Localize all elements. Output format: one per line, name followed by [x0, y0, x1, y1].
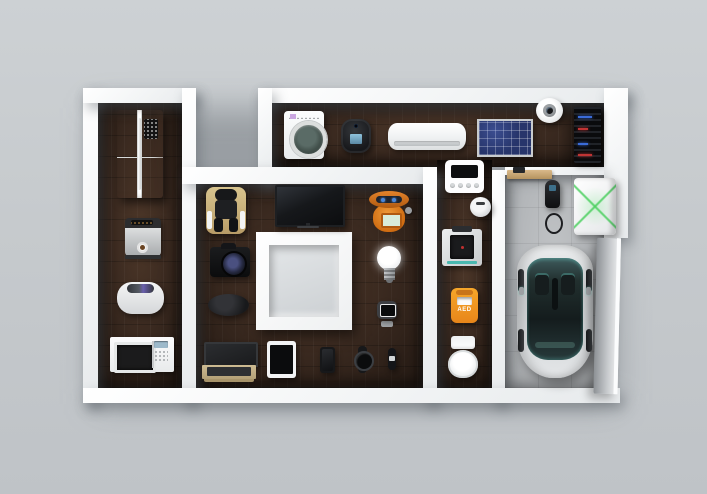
- smart-camera-head: [377, 301, 397, 319]
- air-conditioner-vent: [394, 141, 460, 146]
- robot-body: [373, 204, 405, 232]
- car-seat-left: [535, 275, 549, 295]
- massage-chair: [206, 187, 246, 234]
- central-atrium-block: [256, 232, 352, 330]
- refrigerator-control-panel: [144, 119, 158, 139]
- wall-top-outer: [258, 88, 628, 103]
- air-conditioner: [388, 123, 466, 150]
- coffee-drip-tray: [125, 255, 161, 259]
- ev-charger-handle: [545, 180, 560, 208]
- massage-chair-footrest-right: [229, 218, 238, 232]
- thermostat-display-slot: [476, 202, 485, 205]
- wall-living-right: [423, 167, 437, 403]
- smartwatch: [353, 346, 371, 373]
- toilet-bowl: [448, 350, 478, 378]
- ev-charger-cable: [545, 213, 563, 234]
- energy-monitor-button-1: [450, 183, 455, 188]
- wall-kitchen-top: [83, 88, 196, 103]
- refrigerator-handle: [138, 118, 141, 190]
- bulb-tip: [386, 280, 393, 283]
- electric-car: [517, 245, 593, 378]
- computer-mouse: [208, 294, 249, 316]
- smart-home-floorplan-render: AED: [0, 0, 707, 494]
- coffee-machine: [125, 218, 161, 256]
- dslr-camera: [210, 247, 250, 277]
- toilet-tank: [451, 336, 475, 349]
- robot-head: [369, 191, 409, 208]
- tv-stand-base: [297, 226, 319, 228]
- tablet-screen: [270, 345, 293, 374]
- camera-viewfinder-hump: [221, 243, 236, 249]
- aed-handle: [456, 290, 473, 295]
- wall-living-top: [182, 167, 437, 184]
- massage-chair-seat: [215, 200, 237, 219]
- microwave-keypad: [154, 350, 168, 362]
- aed-defibrillator: AED: [451, 288, 478, 323]
- smart-refrigerator: [117, 110, 163, 198]
- ev-charger-screen: [549, 185, 556, 191]
- rice-cooker: [117, 282, 164, 314]
- washer-door: [290, 121, 327, 158]
- laptop-front-lip: [204, 379, 254, 382]
- robot-eye-right-icon: [392, 198, 396, 202]
- solar-panel: [477, 119, 533, 157]
- dome-security-camera: [536, 98, 563, 123]
- atrium-recess: [269, 245, 339, 317]
- led-bulb: [377, 246, 401, 284]
- smartphone-screen: [322, 349, 333, 371]
- laptop-keyboard-deck: [202, 365, 256, 379]
- car-glass-roof: [527, 258, 583, 360]
- car-mirror-left: [519, 287, 524, 295]
- energy-monitor-screen: [451, 165, 478, 178]
- microwave-door: [114, 342, 156, 373]
- server-rack: [574, 107, 601, 163]
- massage-chair-footrest-left: [214, 218, 223, 232]
- washer-control-strip: [288, 114, 320, 119]
- coffee-machine-display: [131, 220, 153, 225]
- robot-hand: [405, 207, 412, 214]
- aed-label: AED: [451, 307, 478, 313]
- server-led-blue: [578, 116, 592, 118]
- car-wheel-rear-right: [586, 329, 592, 352]
- car-wheel-rear-left: [518, 329, 524, 352]
- smart-toilet: [447, 336, 479, 379]
- rice-cooker-lid: [127, 284, 154, 293]
- smart-camera-lens-icon: [380, 304, 396, 317]
- car-center-console: [552, 278, 558, 310]
- garage-wall-shelf: [507, 170, 552, 179]
- server-led-red: [578, 128, 588, 130]
- laptop-keyboard: [207, 367, 251, 376]
- smartphone: [320, 347, 335, 373]
- robot-belly-screen: [381, 213, 402, 228]
- camera-lens-icon: [221, 251, 247, 277]
- massage-chair-armrest-left: [207, 211, 212, 229]
- tv-screen: [275, 185, 345, 227]
- watch-face: [354, 351, 374, 371]
- microwave-control-panel: [154, 341, 170, 368]
- hub-camera-icon: [354, 124, 358, 128]
- ev-charger: [541, 180, 565, 234]
- server-led-red-2: [578, 154, 592, 156]
- car-mirror-right: [586, 287, 591, 295]
- laptop: [202, 342, 256, 382]
- printer-accent-strip: [447, 261, 477, 264]
- bulb-screw-base: [384, 268, 395, 280]
- robot-eye-left-icon: [381, 198, 385, 202]
- wall-garage-left: [492, 170, 505, 403]
- bulb-globe: [377, 246, 401, 270]
- aed-screen: [457, 297, 472, 305]
- server-led-blue-2: [578, 143, 588, 145]
- car-seat-right: [561, 275, 575, 295]
- tablet: [267, 341, 296, 378]
- energy-monitor-button-2: [458, 183, 463, 188]
- smart-thermostat: [470, 197, 491, 217]
- 3d-printer: [442, 229, 482, 266]
- hub-screen: [350, 134, 362, 144]
- fitness-tracker-clasp: [389, 356, 395, 361]
- energy-monitor-button-3: [466, 183, 471, 188]
- wall-kitchen-left: [83, 88, 98, 403]
- fitness-tracker: [388, 348, 396, 370]
- garage-door: [593, 238, 621, 395]
- garage-door-edge: [613, 238, 621, 394]
- massage-chair-armrest-right: [240, 211, 245, 229]
- dome-camera-lens-icon: [546, 107, 553, 114]
- energy-monitor-button-4: [474, 183, 479, 188]
- shelf-gadget: [513, 167, 525, 173]
- flat-screen-tv: [275, 185, 341, 229]
- energy-monitor-panel: [445, 160, 484, 193]
- microwave-screen: [154, 341, 168, 348]
- laptop-screen: [204, 342, 258, 367]
- wall-kitchen-living-shared: [182, 88, 196, 403]
- home-robot: [368, 191, 410, 233]
- home-battery-unit: [574, 178, 616, 235]
- printer-top-handle: [452, 226, 472, 232]
- microwave-oven: [110, 337, 174, 372]
- smart-home-hub: [341, 119, 371, 153]
- coffee-cup: [137, 242, 148, 253]
- car-rear-deck: [535, 342, 575, 348]
- robot-visor: [376, 196, 402, 203]
- smart-camera-base: [381, 321, 393, 327]
- printer-indicator-icon: [461, 246, 464, 249]
- smart-camera: [376, 301, 398, 327]
- washing-machine: [284, 111, 324, 159]
- wall-bottom-outer: [83, 388, 620, 403]
